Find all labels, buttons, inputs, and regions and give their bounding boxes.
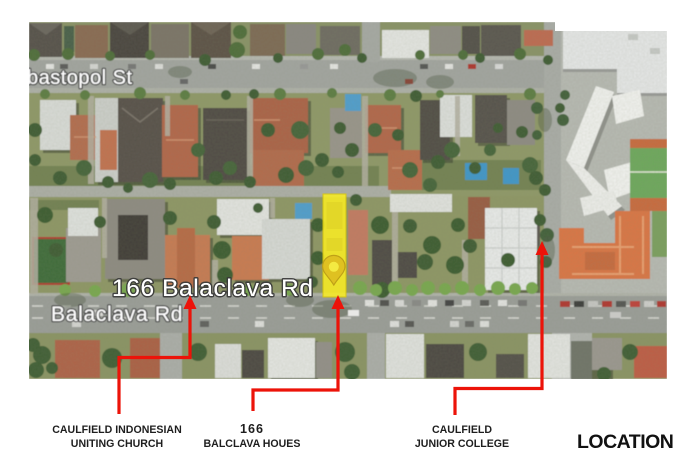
- svg-text:CAULFIELD: CAULFIELD: [432, 424, 492, 436]
- svg-text:166: 166: [240, 422, 264, 436]
- svg-text:bastopol St: bastopol St: [27, 67, 133, 89]
- svg-text:UNITING CHURCH: UNITING CHURCH: [71, 438, 163, 450]
- svg-text:LOCATION: LOCATION: [577, 431, 673, 450]
- svg-text:BALCLAVA HOUES: BALCLAVA HOUES: [204, 438, 301, 450]
- svg-text:166 Balaclava Rd: 166 Balaclava Rd: [112, 275, 314, 302]
- svg-text:Balaclava Rd: Balaclava Rd: [51, 303, 183, 326]
- svg-text:JUNIOR COLLEGE: JUNIOR COLLEGE: [415, 438, 509, 450]
- svg-text:CAULFIELD INDONESIAN: CAULFIELD INDONESIAN: [52, 424, 181, 436]
